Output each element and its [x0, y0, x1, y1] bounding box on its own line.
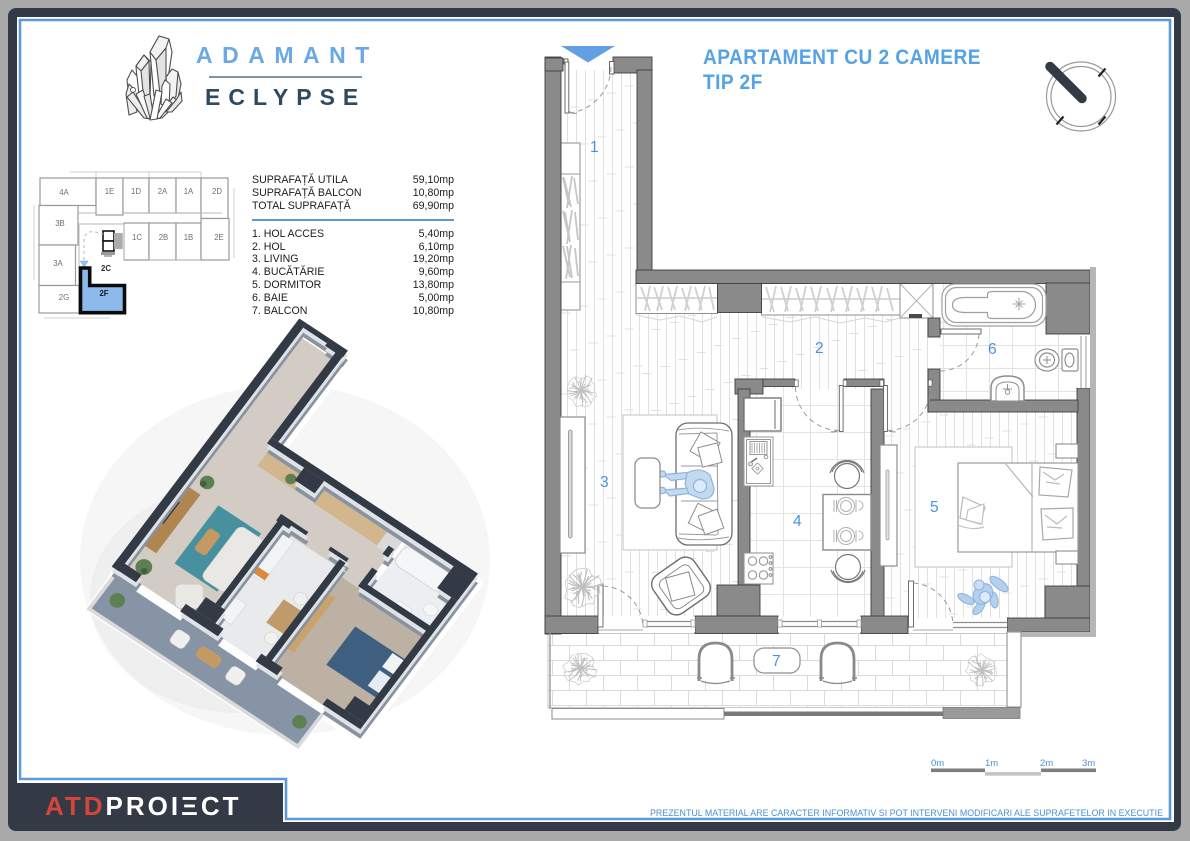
svg-text:2E: 2E	[214, 233, 224, 242]
svg-text:3m: 3m	[1082, 758, 1095, 769]
svg-text:1C: 1C	[132, 233, 142, 242]
svg-text:1m: 1m	[985, 758, 998, 769]
svg-text:2m: 2m	[1040, 758, 1053, 769]
svg-text:3: 3	[600, 474, 609, 491]
svg-text:5: 5	[930, 499, 939, 516]
svg-text:3B: 3B	[55, 219, 65, 228]
svg-text:6: 6	[988, 341, 997, 358]
svg-text:1E: 1E	[105, 187, 115, 196]
svg-text:1B: 1B	[184, 233, 194, 242]
svg-text:3A: 3A	[53, 259, 63, 268]
svg-text:0m: 0m	[931, 758, 944, 769]
svg-text:4A: 4A	[59, 188, 69, 197]
svg-text:2B: 2B	[159, 233, 169, 242]
svg-text:2F: 2F	[99, 289, 108, 298]
svg-text:1D: 1D	[131, 187, 141, 196]
svg-text:2C: 2C	[101, 264, 111, 273]
svg-text:2G: 2G	[59, 293, 69, 302]
svg-text:7: 7	[772, 653, 781, 670]
svg-text:4: 4	[793, 513, 802, 530]
svg-text:2: 2	[815, 340, 824, 357]
svg-text:2D: 2D	[212, 187, 222, 196]
svg-text:2A: 2A	[158, 187, 168, 196]
svg-text:1: 1	[590, 139, 599, 156]
svg-text:1A: 1A	[184, 187, 194, 196]
